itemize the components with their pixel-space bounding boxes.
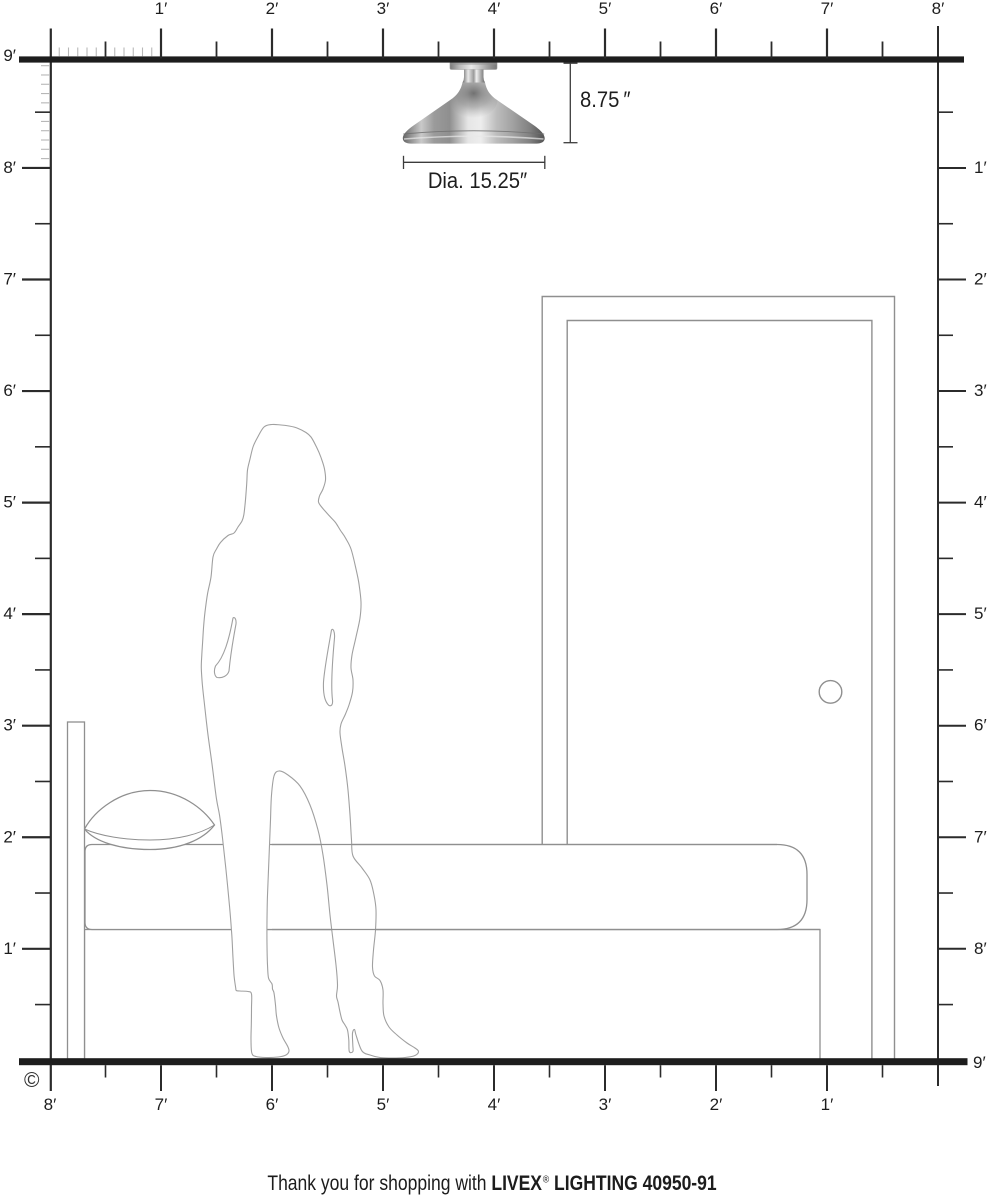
svg-text:1′: 1′ <box>821 1095 834 1114</box>
svg-text:4′: 4′ <box>488 0 501 18</box>
svg-text:4′: 4′ <box>3 604 16 623</box>
svg-text:4′: 4′ <box>488 1095 501 1114</box>
svg-text:Dia. 15.25″: Dia. 15.25″ <box>428 169 528 193</box>
svg-text:5′: 5′ <box>599 0 612 18</box>
svg-text:6′: 6′ <box>974 716 987 735</box>
svg-text:7′: 7′ <box>821 0 834 18</box>
svg-text:9′: 9′ <box>973 1053 986 1072</box>
svg-text:8′: 8′ <box>3 158 16 177</box>
svg-text:2′: 2′ <box>974 270 987 289</box>
svg-text:8.75 ″: 8.75 ″ <box>580 88 631 112</box>
svg-text:©: © <box>24 1069 40 1092</box>
svg-text:7′: 7′ <box>974 827 987 846</box>
svg-text:6′: 6′ <box>266 1095 279 1114</box>
svg-text:2′: 2′ <box>710 1095 723 1114</box>
svg-text:3′: 3′ <box>377 0 390 18</box>
svg-text:5′: 5′ <box>974 604 987 623</box>
svg-text:3′: 3′ <box>3 716 16 735</box>
svg-text:6′: 6′ <box>710 0 723 18</box>
svg-text:7′: 7′ <box>155 1095 168 1114</box>
svg-text:7′: 7′ <box>3 270 16 289</box>
svg-text:6′: 6′ <box>3 381 16 400</box>
svg-text:8′: 8′ <box>932 0 945 18</box>
svg-text:3′: 3′ <box>974 381 987 400</box>
svg-text:Thank you for shopping with LI: Thank you for shopping with LIVEX ® LIGH… <box>267 1172 717 1196</box>
svg-text:2′: 2′ <box>266 0 279 18</box>
svg-text:2′: 2′ <box>3 827 16 846</box>
svg-text:1′: 1′ <box>155 0 168 18</box>
svg-text:5′: 5′ <box>3 493 16 512</box>
svg-text:5′: 5′ <box>377 1095 390 1114</box>
svg-text:3′: 3′ <box>599 1095 612 1114</box>
svg-text:1′: 1′ <box>3 939 16 958</box>
svg-text:1′: 1′ <box>974 158 987 177</box>
svg-text:8′: 8′ <box>44 1095 57 1114</box>
svg-text:4′: 4′ <box>974 493 987 512</box>
svg-text:8′: 8′ <box>974 939 987 958</box>
svg-text:9′: 9′ <box>3 46 16 65</box>
